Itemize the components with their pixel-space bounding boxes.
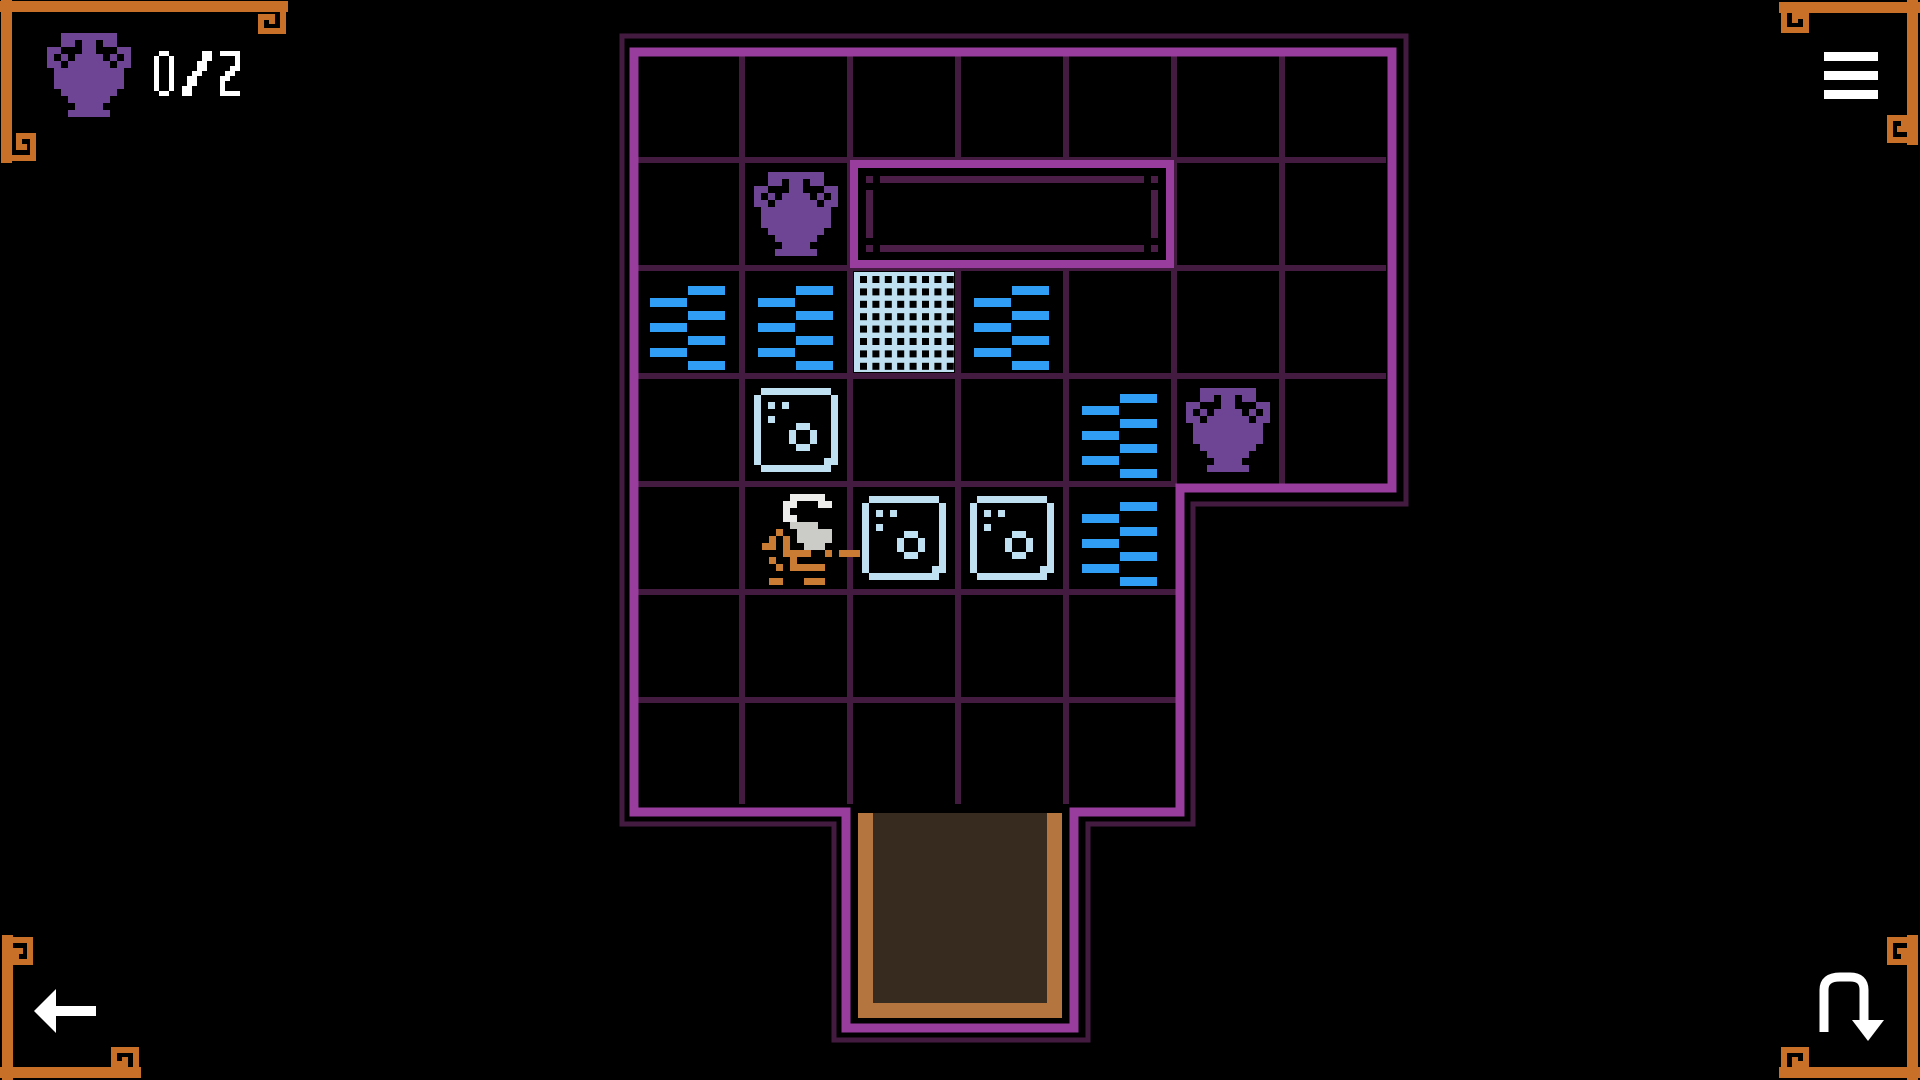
slot-inner-line bbox=[880, 245, 1144, 252]
water-tile bbox=[1066, 484, 1174, 592]
amphora bbox=[1174, 376, 1282, 484]
water-tile bbox=[742, 268, 850, 376]
slot-inner-line bbox=[1151, 190, 1158, 238]
exit-door bbox=[858, 813, 1062, 1018]
amphora bbox=[742, 160, 850, 268]
menu-button[interactable] bbox=[1816, 44, 1888, 108]
water-tile bbox=[1066, 376, 1174, 484]
water-lines-icon bbox=[1066, 484, 1174, 592]
restart-arrow-icon bbox=[1806, 966, 1898, 1050]
slot-corner-dot bbox=[866, 245, 873, 252]
water-tile bbox=[634, 268, 742, 376]
block-icon bbox=[862, 496, 946, 580]
player-character bbox=[742, 484, 850, 592]
door-frame bbox=[858, 813, 1062, 1018]
game-screen bbox=[0, 0, 1920, 1080]
player-icon bbox=[755, 494, 860, 585]
block-icon bbox=[970, 496, 1054, 580]
restart-button[interactable] bbox=[1806, 966, 1898, 1050]
back-arrow-icon bbox=[28, 980, 108, 1038]
water-lines-icon bbox=[634, 268, 742, 376]
grate-tile bbox=[850, 268, 958, 376]
door-floor bbox=[873, 813, 1047, 1003]
amphora-icon bbox=[47, 33, 131, 121]
block bbox=[742, 376, 850, 484]
block bbox=[850, 484, 958, 592]
amphora-counter-value bbox=[154, 51, 248, 100]
slot-corner-dot bbox=[1151, 176, 1158, 183]
amphora-icon bbox=[47, 33, 131, 117]
slot-corner-dot bbox=[1151, 245, 1158, 252]
amphora-counter bbox=[0, 0, 320, 160]
water-lines-icon bbox=[958, 268, 1066, 376]
amphora-icon bbox=[1186, 388, 1270, 472]
block-icon bbox=[754, 388, 838, 472]
counter-pixel-text bbox=[154, 51, 248, 96]
water-tile bbox=[958, 268, 1066, 376]
water-lines-icon bbox=[742, 268, 850, 376]
slot-inner-line bbox=[880, 176, 1144, 183]
amphora-icon bbox=[754, 172, 838, 256]
slot-corner-dot bbox=[866, 176, 873, 183]
slot-inner-line bbox=[866, 190, 873, 238]
water-lines-icon bbox=[1066, 376, 1174, 484]
block bbox=[958, 484, 1066, 592]
grate-icon bbox=[850, 268, 958, 376]
back-button[interactable] bbox=[28, 980, 108, 1038]
amphora-slot bbox=[850, 160, 1174, 268]
